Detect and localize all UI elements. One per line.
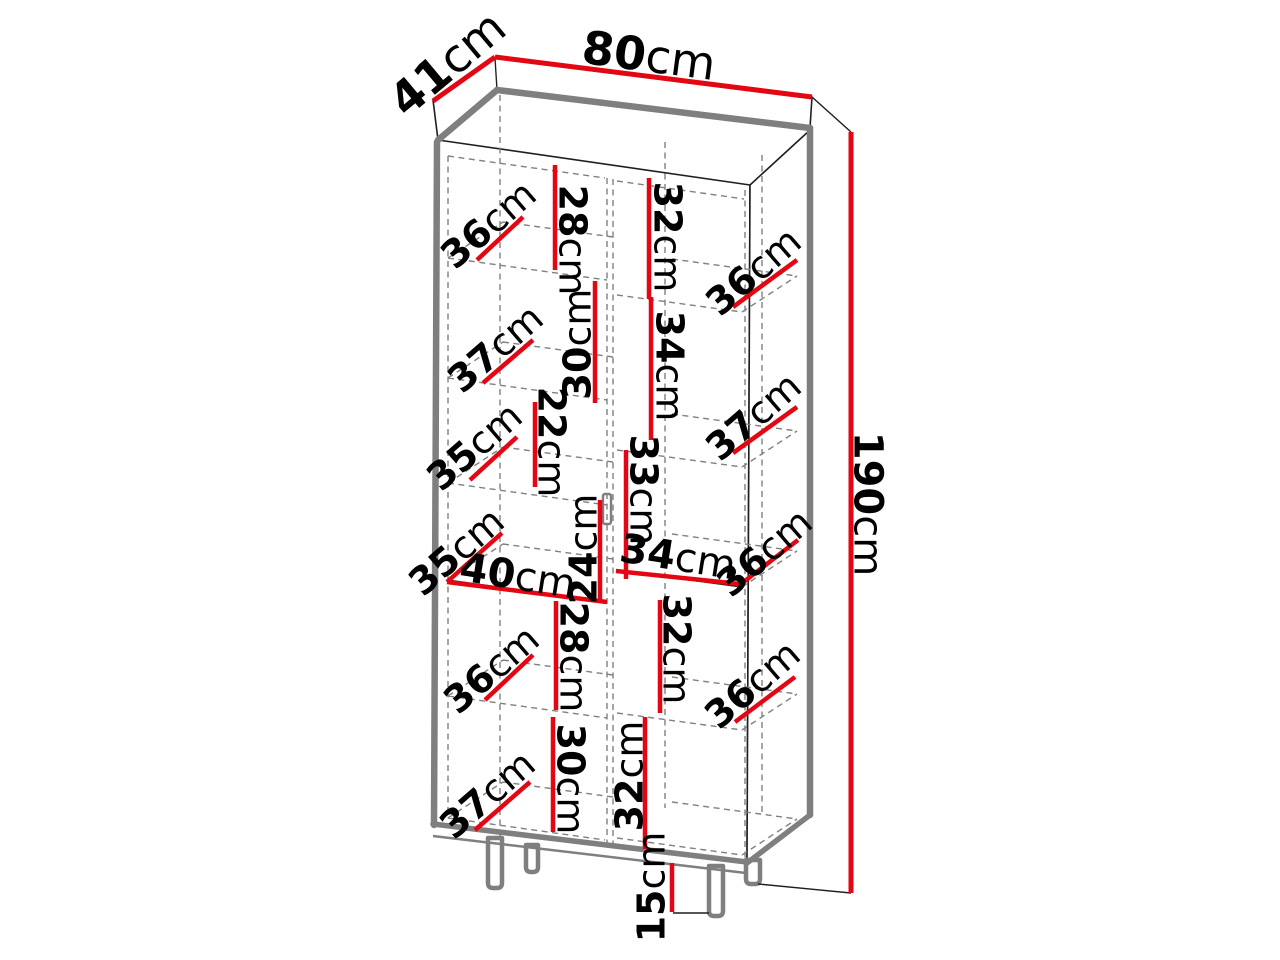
- dimension-label-shelf-32-row1-right: 32cm: [645, 182, 689, 293]
- dimension-annotations: 80cm41cm190cm28cm36cm32cm36cm30cm37cm34c…: [379, 0, 891, 942]
- dimension-label-shelf-22-row3-left: 22cm: [529, 387, 573, 498]
- dimension-label-shelf-34-row2-right: 34cm: [647, 311, 691, 422]
- furniture-dimension-diagram: 80cm41cm190cm28cm36cm32cm36cm30cm37cm34c…: [0, 0, 1280, 960]
- dimension-label-height-190: 190cm: [845, 432, 891, 576]
- height-extension-top: [812, 97, 851, 132]
- screenshot-canvas: 80cm41cm190cm28cm36cm32cm36cm30cm37cm34c…: [0, 0, 1280, 960]
- dimension-label-shelf-30-row6-left: 30cm: [548, 724, 592, 835]
- cabinet-leg-front-right: [709, 866, 723, 916]
- dimension-label-shelf-32-row6-right: 32cm: [608, 721, 652, 832]
- dimension-label-shelf-28-row1-left: 28cm: [550, 185, 594, 296]
- dimension-label-legs-height-15: 15cm: [630, 832, 674, 943]
- dimension-label-shelf-28-row5-left: 28cm: [551, 602, 595, 713]
- height-extension-bottom: [758, 884, 851, 893]
- dimension-label-shelf-24-row4-left: 24cm: [562, 494, 606, 605]
- cabinet-leg-front-left: [488, 838, 502, 888]
- dimension-label-shelf-30-row2-left: 30cm: [556, 289, 600, 400]
- dimension-label-shelf-32-row5-right: 32cm: [654, 594, 698, 705]
